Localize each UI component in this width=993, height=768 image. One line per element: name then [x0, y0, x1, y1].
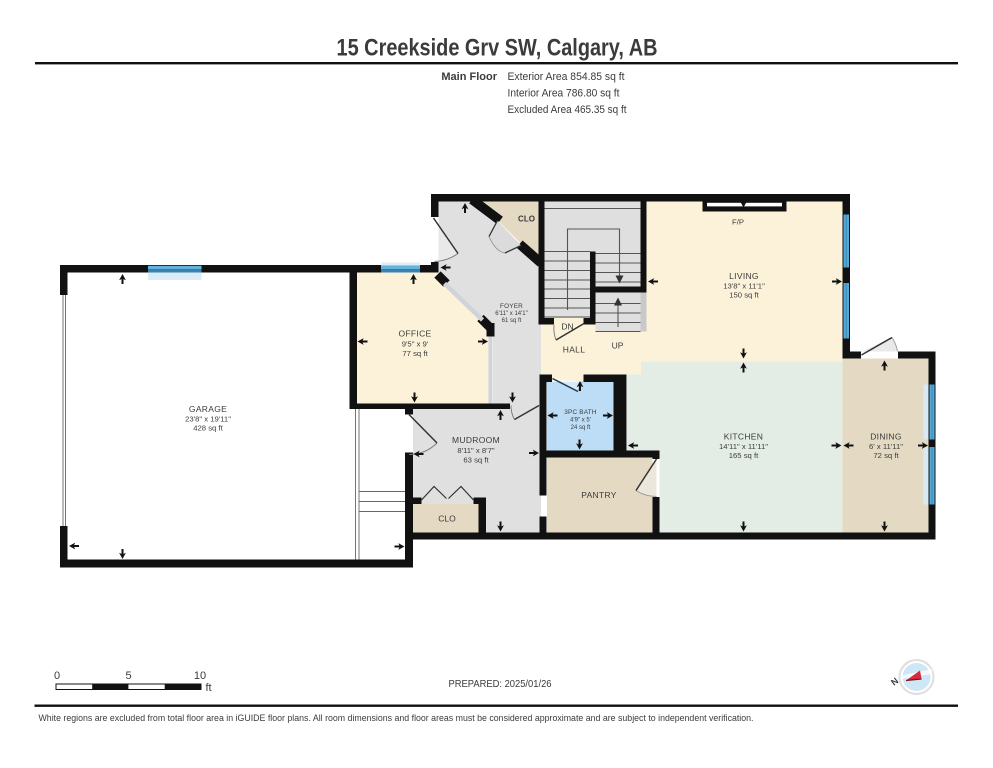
svg-text:DINING: DINING	[870, 432, 902, 442]
svg-text:24 sq ft: 24 sq ft	[571, 425, 591, 431]
svg-text:DN: DN	[561, 322, 573, 332]
svg-text:PREPARED: 2025/01/26: PREPARED: 2025/01/26	[449, 679, 552, 690]
svg-text:Interior Area 786.80 sq ft: Interior Area 786.80 sq ft	[508, 88, 620, 100]
svg-text:CLO: CLO	[438, 514, 456, 524]
svg-text:GARAGE: GARAGE	[189, 404, 227, 414]
svg-text:F/P: F/P	[732, 218, 744, 227]
svg-text:10: 10	[194, 670, 206, 682]
svg-text:23'8" x 19'11": 23'8" x 19'11"	[185, 415, 231, 424]
svg-text:61 sq ft: 61 sq ft	[502, 318, 522, 324]
svg-text:150 sq ft: 150 sq ft	[729, 291, 759, 300]
svg-text:Exterior Area 854.85 sq ft: Exterior Area 854.85 sq ft	[508, 71, 625, 83]
svg-text:ft: ft	[206, 682, 212, 694]
svg-text:6' x 11'11": 6' x 11'11"	[869, 442, 903, 451]
svg-text:OFFICE: OFFICE	[399, 329, 432, 339]
svg-text:165 sq ft: 165 sq ft	[729, 451, 759, 460]
svg-text:MUDROOM: MUDROOM	[452, 435, 500, 445]
svg-text:3PC BATH: 3PC BATH	[564, 409, 597, 416]
svg-text:Main Floor: Main Floor	[441, 71, 497, 83]
svg-text:HALL: HALL	[563, 345, 585, 355]
svg-text:KITCHEN: KITCHEN	[724, 432, 763, 442]
svg-text:PANTRY: PANTRY	[581, 490, 617, 500]
svg-text:72 sq ft: 72 sq ft	[873, 451, 899, 460]
svg-text:77 sq ft: 77 sq ft	[402, 349, 428, 358]
svg-text:63 sq ft: 63 sq ft	[463, 456, 489, 465]
svg-text:FOYER: FOYER	[500, 303, 523, 310]
svg-text:13'8" x 11'1": 13'8" x 11'1"	[723, 282, 765, 291]
svg-text:428 sq ft: 428 sq ft	[193, 424, 223, 433]
svg-text:15 Creekside Grv SW, Calgary,: 15 Creekside Grv SW, Calgary, AB	[337, 35, 658, 62]
svg-text:8'11" x 8'7": 8'11" x 8'7"	[457, 446, 495, 455]
svg-text:LIVING: LIVING	[729, 271, 759, 281]
svg-text:0: 0	[54, 670, 60, 682]
svg-text:6'11" x 14'1": 6'11" x 14'1"	[495, 311, 527, 317]
svg-text:4'9" x 5': 4'9" x 5'	[570, 418, 591, 424]
svg-text:5: 5	[125, 670, 131, 682]
svg-text:14'11" x 11'11": 14'11" x 11'11"	[719, 442, 768, 451]
svg-text:9'5" x 9': 9'5" x 9'	[402, 340, 429, 349]
svg-text:Excluded Area 465.35 sq ft: Excluded Area 465.35 sq ft	[508, 104, 627, 116]
svg-text:White regions are excluded fro: White regions are excluded from total fl…	[39, 713, 754, 724]
svg-text:UP: UP	[612, 341, 624, 351]
svg-text:CLO: CLO	[518, 215, 535, 224]
